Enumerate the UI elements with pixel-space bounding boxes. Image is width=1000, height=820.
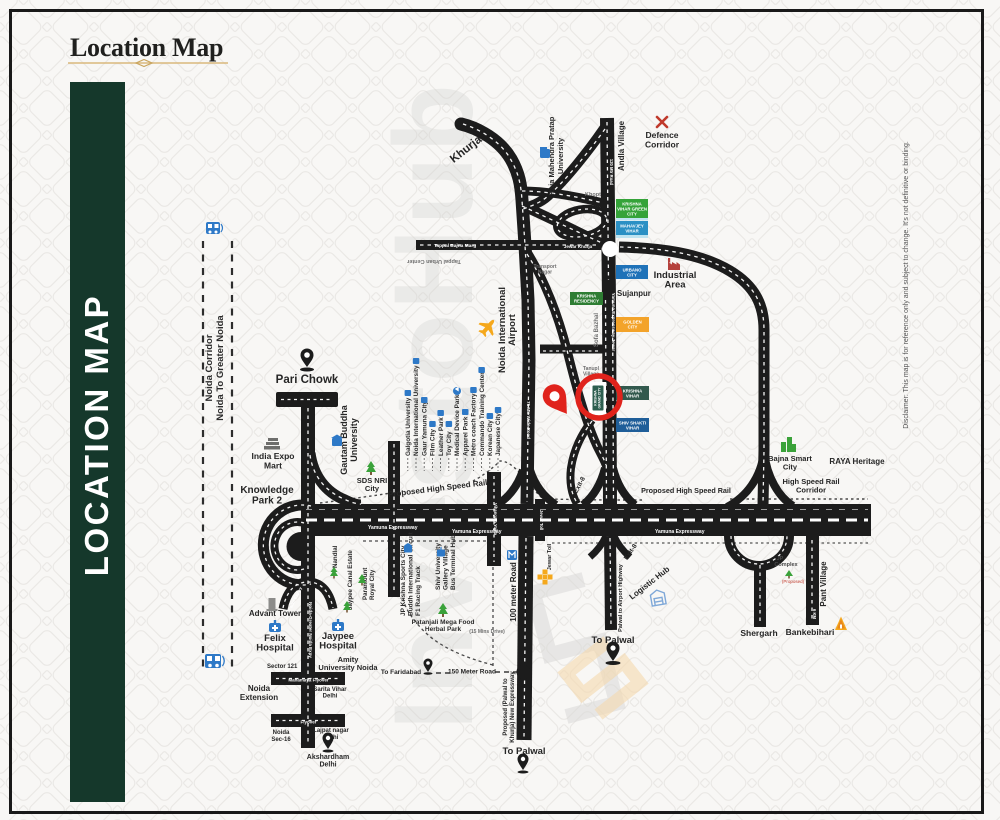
svg-text:Noida Corridor: Noida Corridor — [204, 334, 215, 401]
svg-text:Knowledge: Knowledge — [240, 485, 294, 496]
svg-text:Noida To Greater Noida: Noida To Greater Noida — [215, 315, 226, 421]
svg-text:Park 2: Park 2 — [252, 496, 282, 507]
svg-text:Royal City: Royal City — [369, 569, 376, 600]
svg-text:Sec-16: Sec-16 — [271, 737, 291, 743]
svg-text:(Proposed): (Proposed) — [782, 579, 805, 584]
svg-text:120 Mtr Road: 120 Mtr Road — [609, 159, 614, 186]
svg-text:Medical Device Park: Medical Device Park — [454, 394, 461, 456]
svg-text:Sujanpur: Sujanpur — [617, 289, 651, 298]
svg-text:To Faridabad: To Faridabad — [381, 669, 421, 676]
svg-text:Bus Terminal Hub: Bus Terminal Hub — [450, 535, 457, 590]
svg-text:CITY: CITY — [628, 325, 638, 330]
svg-text:Yamuna Expressway: Yamuna Expressway — [655, 529, 705, 535]
svg-text:F1 Racing Track: F1 Racing Track — [415, 566, 422, 616]
svg-text:Yamuna Expressway: Yamuna Expressway — [452, 529, 502, 535]
svg-text:India Expo: India Expo — [252, 451, 295, 461]
svg-text:VIHAR: VIHAR — [625, 229, 639, 234]
svg-text:Palwal to Airport Highway: Palwal to Airport Highway — [618, 563, 624, 632]
svg-text:Pari Chowk: Pari Chowk — [276, 374, 339, 386]
svg-text:Toy City: Toy City — [446, 431, 453, 456]
svg-text:Noida: Noida — [273, 730, 290, 736]
svg-text:Japanese City: Japanese City — [495, 413, 502, 456]
svg-text:Pant Village: Pant Village — [819, 561, 828, 607]
svg-text:CITY: CITY — [627, 212, 637, 217]
svg-text:Nandlal: Nandlal — [332, 545, 339, 568]
svg-text:Defence: Defence — [645, 130, 678, 140]
svg-text:Gaur Yamuna City: Gaur Yamuna City — [421, 401, 428, 456]
svg-text:City: City — [783, 463, 798, 472]
svg-text:Jewar Toll: Jewar Toll — [539, 510, 544, 530]
svg-text:Disclaimer: This map is for re: Disclaimer: This map is for reference on… — [903, 141, 910, 429]
svg-text:150 Meter Road: 150 Meter Road — [448, 669, 496, 676]
svg-text:Corridor: Corridor — [645, 140, 680, 150]
svg-text:Bankebihari: Bankebihari — [786, 627, 835, 637]
svg-text:Extension: Extension — [240, 693, 278, 702]
svg-text:Andla Village: Andla Village — [617, 120, 626, 171]
svg-text:Delhi: Delhi — [323, 694, 338, 700]
svg-text:VIHAR: VIHAR — [626, 394, 640, 399]
svg-text:Complex: Complex — [774, 562, 798, 568]
svg-text:GRAND CITY: GRAND CITY — [598, 387, 602, 409]
svg-text:Proposed (Palwal to: Proposed (Palwal to — [503, 678, 509, 736]
svg-text:Nagar: Nagar — [538, 270, 552, 276]
svg-text:Proposed High Speed Rail: Proposed High Speed Rail — [641, 486, 731, 495]
svg-text:Flyover: Flyover — [300, 720, 316, 725]
svg-text:Airport: Airport — [507, 313, 518, 346]
svg-text:6 KM: 6 KM — [812, 609, 817, 620]
svg-text:Khurja) New Expressway: Khurja) New Expressway — [510, 671, 516, 743]
svg-text:Hospital: Hospital — [319, 641, 356, 652]
svg-text:Sarita Vihar: Sarita Vihar — [313, 687, 347, 693]
svg-text:Paramount: Paramount — [362, 568, 369, 600]
svg-text:RESIDENCY: RESIDENCY — [574, 299, 599, 304]
svg-text:Sofa Bazhal: Sofa Bazhal — [594, 313, 600, 347]
svg-text:Yamuna Expressway: Yamuna Expressway — [368, 525, 418, 531]
svg-text:University: University — [556, 137, 565, 174]
svg-text:Hospital: Hospital — [256, 643, 293, 654]
svg-text:University Noida: University Noida — [318, 663, 378, 672]
svg-text:Film City: Film City — [430, 429, 437, 456]
svg-text:Yamuna Expressway Jewar: Yamuna Expressway Jewar — [611, 293, 616, 352]
svg-text:Jewar Toll: Jewar Toll — [547, 543, 553, 570]
svg-text:75 Mtr Wide Road: 75 Mtr Wide Road — [526, 401, 531, 439]
svg-text:Delhi: Delhi — [319, 762, 336, 769]
svg-text:Akshardham: Akshardham — [307, 754, 349, 761]
svg-text:100 meter Road: 100 meter Road — [509, 562, 518, 622]
svg-text:VIHAR: VIHAR — [626, 426, 640, 431]
svg-text:Mahamaya Flyover: Mahamaya Flyover — [288, 678, 329, 683]
svg-text:Mart: Mart — [264, 461, 282, 471]
svg-text:Shergarh: Shergarh — [740, 628, 777, 638]
svg-text:Jewar Khurja: Jewar Khurja — [564, 244, 593, 249]
svg-text:Patanjali Mega Food: Patanjali Mega Food — [412, 619, 475, 626]
svg-text:JP Krishna Sports City: JP Krishna Sports City — [400, 545, 407, 616]
svg-text:Tappal Urban Center: Tappal Urban Center — [406, 258, 461, 264]
svg-text:Commando Training Center: Commando Training Center — [479, 372, 486, 456]
svg-text:Noida-Greater Noida Expy: Noida-Greater Noida Expy — [308, 602, 313, 658]
svg-text:(15 Mins Drive): (15 Mins Drive) — [469, 629, 505, 635]
svg-text:Jaypee Canal Estate: Jaypee Canal Estate — [347, 550, 354, 610]
svg-text:RAYA Heritage: RAYA Heritage — [829, 457, 885, 466]
svg-text:Metro coach Factory: Metro coach Factory — [471, 393, 478, 456]
svg-text:University: University — [349, 418, 359, 462]
svg-text:Herbal Park: Herbal Park — [425, 626, 462, 633]
svg-text:CITY: CITY — [627, 273, 637, 278]
svg-text:Noida: Noida — [248, 684, 271, 693]
svg-text:Lajpat nagar: Lajpat nagar — [313, 728, 349, 734]
svg-text:Area: Area — [664, 280, 686, 291]
svg-text:Corridor: Corridor — [796, 486, 826, 495]
svg-text:Apparel Park: Apparel Park — [462, 416, 469, 456]
svg-text:Sector 121: Sector 121 — [267, 664, 298, 670]
svg-text:Galgotia University: Galgotia University — [405, 397, 412, 456]
svg-text:Khopt: Khopt — [585, 192, 601, 198]
svg-text:Leather Park: Leather Park — [438, 417, 445, 456]
svg-text:City: City — [365, 484, 380, 493]
svg-text:Noida International University: Noida International University — [413, 365, 420, 456]
svg-text:Tappal Bajna Marg: Tappal Bajna Marg — [434, 243, 476, 249]
svg-text:Korean City: Korean City — [487, 420, 494, 456]
